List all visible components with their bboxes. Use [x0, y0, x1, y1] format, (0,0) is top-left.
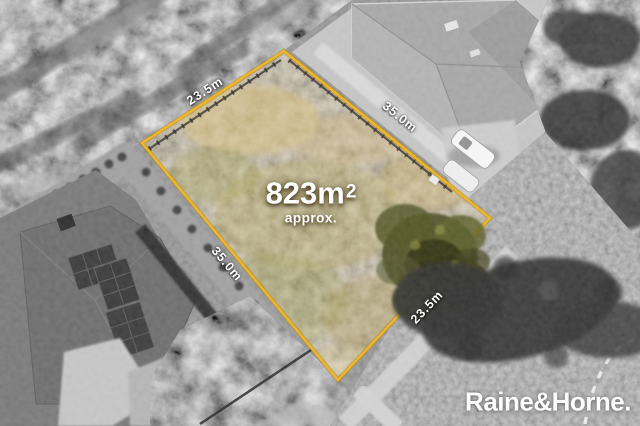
aerial-photo: [0, 0, 640, 426]
listing-aerial-image: 23.5m 35.0m 35.0m 23.5m 823m2 approx. Ra…: [0, 0, 640, 426]
